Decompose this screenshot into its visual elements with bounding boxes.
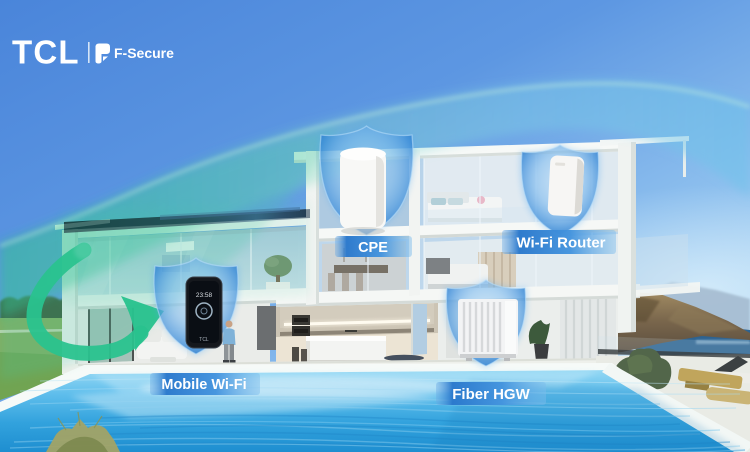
svg-text:Fiber HGW: Fiber HGW (452, 386, 530, 403)
svg-text:TCL: TCL (12, 34, 80, 71)
svg-text:TCL: TCL (199, 337, 209, 343)
svg-text:Mobile Wi-Fi: Mobile Wi-Fi (161, 377, 246, 393)
svg-text:Wi-Fi Router: Wi-Fi Router (516, 235, 605, 252)
svg-text:23:58: 23:58 (196, 292, 213, 299)
svg-text:F-Secure: F-Secure (114, 45, 174, 61)
svg-text:CPE: CPE (358, 240, 388, 256)
